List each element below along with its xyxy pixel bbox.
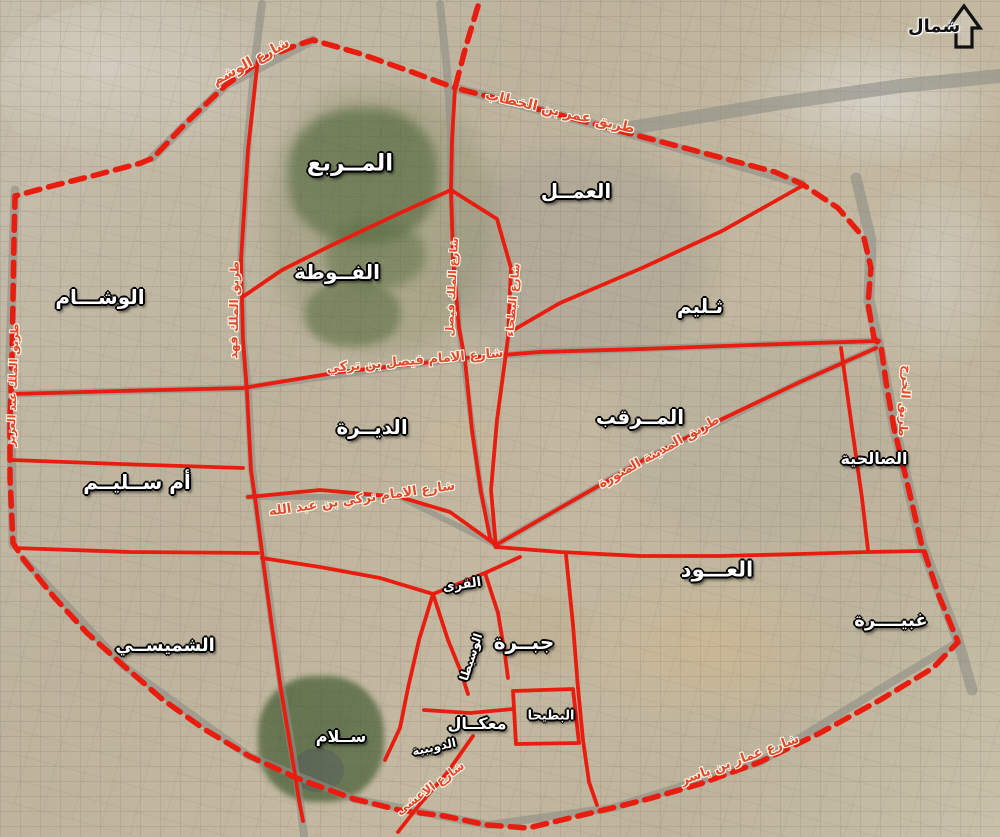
district-label-al-oud: العـــود xyxy=(681,560,753,581)
district-label-al-wisham: الوشـــام xyxy=(55,287,144,307)
district-label-al-murabba: المــربع xyxy=(307,153,393,176)
district-label-thulaim: ثـليم xyxy=(677,296,723,316)
district-label-ad-dirah: الديــرة xyxy=(336,417,407,437)
district-label-al-marqab: المــرقب xyxy=(596,407,684,427)
district-label-umm-slaim: أم ســليــم xyxy=(83,472,191,492)
district-label-al-butaiha: البطيحا xyxy=(528,710,575,723)
compass-north-label: شمال xyxy=(908,16,960,37)
district-label-al-futah: الفــوطة xyxy=(294,262,380,282)
roads-overlay xyxy=(0,0,1000,837)
district-label-ghubairah: غبيــــرة xyxy=(854,612,927,630)
district-label-salam: ســلام xyxy=(316,729,367,745)
district-label-ash-shumaisi: الشميســي xyxy=(115,637,215,655)
district-label-as-salhiyah: الصالحية xyxy=(840,451,907,467)
satellite-map-canvas[interactable]: المــربعالعمــلالفــوطةالوشـــامثـليمالم… xyxy=(0,0,1000,837)
district-label-mikal: معكــال xyxy=(447,716,506,732)
district-label-al-amal: العمــل xyxy=(541,181,612,201)
street-label-king-fahd-road: طريق الملك فهد xyxy=(227,261,241,359)
district-label-jabrah: جبــرة xyxy=(494,632,555,652)
